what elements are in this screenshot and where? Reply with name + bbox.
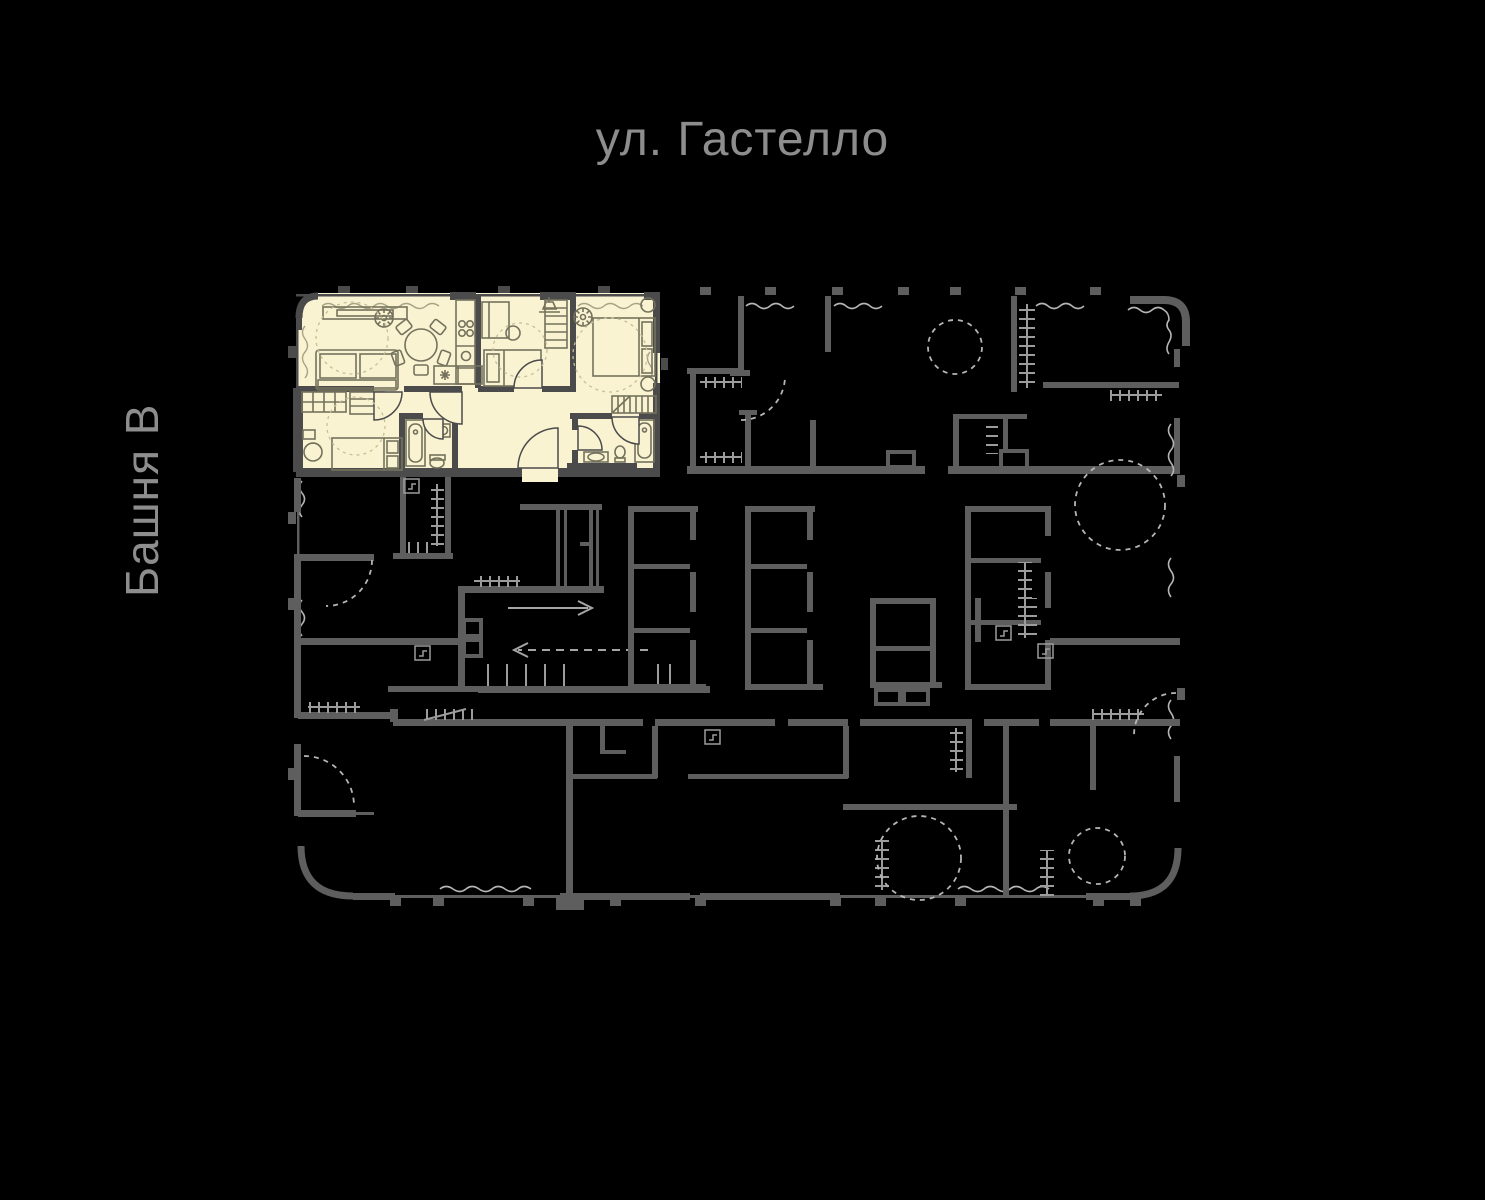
shaft-icon bbox=[415, 646, 430, 660]
fridge-icon bbox=[440, 370, 450, 380]
stair-down-arrow bbox=[514, 643, 648, 657]
highlighted-apartment[interactable] bbox=[288, 286, 668, 482]
elevator-bank-1 bbox=[628, 506, 706, 690]
shaft-icon bbox=[404, 479, 419, 493]
shaft-icon bbox=[705, 730, 720, 744]
closet-shelves bbox=[545, 300, 567, 348]
page: { "labels": { "street": "ул. Гастелло", … bbox=[0, 0, 1485, 1200]
top-band-door-swings bbox=[741, 320, 982, 420]
floor-plan bbox=[0, 0, 1485, 1200]
shaft-icon bbox=[996, 626, 1011, 640]
top-band-walls bbox=[687, 296, 1186, 474]
utility-shaft bbox=[870, 598, 942, 704]
elevator-bank-2 bbox=[745, 506, 823, 690]
shaft-marker-icons bbox=[404, 479, 1053, 744]
mid-left-rooms bbox=[298, 477, 484, 806]
stair-core bbox=[458, 504, 710, 693]
top-window-ticks bbox=[700, 287, 1101, 295]
left-boundary bbox=[288, 478, 374, 816]
bottom-band bbox=[298, 693, 1180, 910]
stair-up-arrow bbox=[508, 601, 592, 615]
stair-treads bbox=[488, 664, 670, 686]
